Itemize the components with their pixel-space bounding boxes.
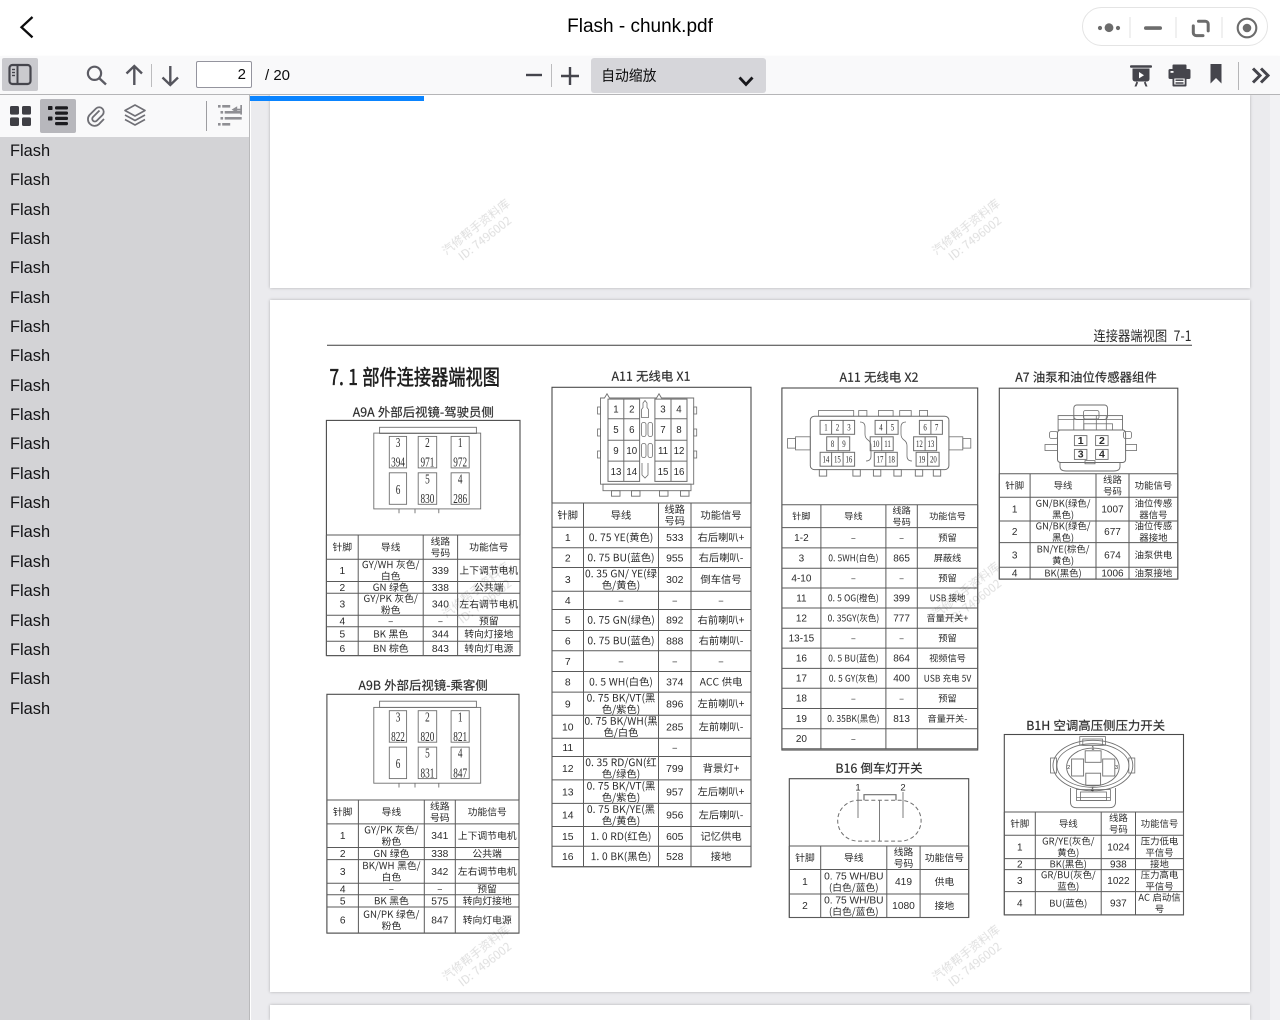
svg-text:847: 847 — [431, 916, 448, 927]
svg-text:18: 18 — [888, 453, 895, 465]
svg-text:338: 338 — [431, 849, 448, 860]
svg-text:2: 2 — [1099, 435, 1105, 447]
svg-text:2: 2 — [1067, 765, 1070, 771]
svg-text:3: 3 — [1017, 876, 1023, 887]
svg-text:13: 13 — [611, 467, 622, 478]
svg-text:14: 14 — [562, 811, 574, 822]
svg-text:2: 2 — [425, 711, 430, 725]
svg-text:5: 5 — [613, 425, 618, 436]
svg-text:338: 338 — [432, 583, 449, 594]
svg-text:677: 677 — [1104, 527, 1121, 538]
svg-text:1: 1 — [339, 566, 345, 577]
svg-text:843: 843 — [432, 644, 449, 655]
svg-text:1: 1 — [340, 831, 346, 842]
svg-text:5: 5 — [425, 747, 430, 761]
svg-text:7: 7 — [660, 425, 665, 436]
svg-text:605: 605 — [666, 832, 684, 843]
svg-text:10: 10 — [562, 722, 574, 733]
svg-text:6: 6 — [339, 644, 345, 655]
svg-text:0. 75 WH/BU: 0. 75 WH/BU — [824, 896, 883, 907]
svg-text:3: 3 — [847, 421, 850, 433]
svg-text:3: 3 — [1012, 550, 1018, 561]
svg-text:4: 4 — [340, 884, 346, 895]
svg-text:4: 4 — [879, 421, 883, 433]
svg-text:7: 7 — [565, 657, 571, 668]
svg-text:937: 937 — [1110, 899, 1127, 910]
svg-text:2: 2 — [900, 783, 905, 794]
svg-text:19: 19 — [918, 453, 925, 465]
svg-text:1: 1 — [1078, 435, 1084, 447]
svg-text:5: 5 — [339, 630, 345, 641]
svg-text:10: 10 — [626, 446, 637, 457]
svg-text:1: 1 — [458, 711, 463, 725]
svg-text:6: 6 — [340, 916, 346, 927]
svg-text:0. 75 WH/BU: 0. 75 WH/BU — [824, 872, 883, 883]
svg-text:896: 896 — [666, 699, 684, 710]
svg-text:9: 9 — [565, 699, 571, 710]
svg-text:394: 394 — [391, 456, 405, 470]
svg-text:971: 971 — [420, 456, 434, 470]
svg-text:374: 374 — [666, 678, 684, 689]
svg-text:15: 15 — [834, 453, 841, 465]
svg-text:847: 847 — [453, 767, 467, 781]
svg-text:19: 19 — [796, 714, 808, 725]
svg-text:1080: 1080 — [892, 901, 915, 912]
svg-text:6: 6 — [396, 758, 401, 772]
svg-text:674: 674 — [1104, 550, 1121, 561]
svg-text:4: 4 — [458, 747, 463, 761]
svg-text:20: 20 — [796, 734, 808, 745]
svg-text:821: 821 — [453, 730, 467, 744]
svg-text:1007: 1007 — [1101, 505, 1124, 516]
svg-text:575: 575 — [431, 896, 448, 907]
svg-text:4-10: 4-10 — [791, 573, 811, 584]
svg-text:2: 2 — [339, 583, 345, 594]
svg-text:6: 6 — [396, 483, 401, 497]
svg-text:2: 2 — [1012, 527, 1018, 538]
svg-text:8: 8 — [565, 678, 571, 689]
svg-text:892: 892 — [666, 616, 684, 627]
svg-text:3: 3 — [565, 575, 571, 586]
svg-text:5: 5 — [340, 896, 346, 907]
svg-text:10: 10 — [873, 438, 880, 450]
svg-text:3: 3 — [1078, 449, 1084, 461]
svg-text:16: 16 — [562, 852, 574, 863]
svg-text:7: 7 — [935, 421, 938, 433]
svg-text:1: 1 — [565, 533, 571, 544]
svg-text:16: 16 — [845, 453, 852, 465]
svg-text:4: 4 — [676, 405, 682, 416]
svg-text:419: 419 — [895, 877, 912, 888]
svg-text:799: 799 — [666, 764, 684, 775]
svg-text:2: 2 — [425, 437, 430, 451]
svg-text:1: 1 — [1012, 505, 1018, 516]
svg-text:3: 3 — [1115, 765, 1118, 771]
svg-text:3: 3 — [340, 867, 346, 878]
svg-text:1: 1 — [855, 783, 860, 794]
svg-text:15: 15 — [658, 467, 669, 478]
svg-text:831: 831 — [420, 767, 434, 781]
svg-text:12: 12 — [796, 613, 808, 624]
svg-text:528: 528 — [666, 852, 684, 863]
svg-text:777: 777 — [893, 613, 910, 624]
svg-text:12: 12 — [674, 446, 685, 457]
svg-text:16: 16 — [796, 654, 808, 665]
svg-text:1: 1 — [613, 405, 618, 416]
svg-text:6: 6 — [629, 425, 634, 436]
svg-text:14: 14 — [822, 453, 829, 465]
svg-text:9: 9 — [613, 446, 618, 457]
svg-text:533: 533 — [666, 533, 684, 544]
svg-text:3: 3 — [396, 437, 401, 451]
svg-text:864: 864 — [893, 654, 910, 665]
svg-text:13-15: 13-15 — [789, 633, 815, 644]
svg-text:286: 286 — [453, 493, 467, 507]
svg-text:4: 4 — [1012, 569, 1018, 580]
svg-text:956: 956 — [666, 811, 684, 822]
svg-text:5: 5 — [891, 421, 894, 433]
svg-text:3: 3 — [799, 553, 805, 564]
svg-text:4: 4 — [458, 473, 463, 487]
svg-text:13: 13 — [927, 438, 934, 450]
svg-text:4: 4 — [339, 617, 345, 628]
svg-text:6: 6 — [565, 636, 571, 647]
svg-text:4: 4 — [565, 596, 571, 607]
svg-text:341: 341 — [431, 831, 448, 842]
svg-text:14: 14 — [626, 467, 637, 478]
svg-text:820: 820 — [420, 730, 434, 744]
svg-text:2: 2 — [565, 553, 571, 564]
svg-text:16: 16 — [674, 467, 685, 478]
svg-text:340: 340 — [432, 600, 449, 611]
svg-text:3: 3 — [339, 600, 345, 611]
svg-text:1024: 1024 — [1107, 842, 1130, 853]
svg-text:865: 865 — [893, 553, 910, 564]
svg-text:4: 4 — [1017, 899, 1023, 910]
svg-text:955: 955 — [666, 553, 684, 564]
svg-text:11: 11 — [796, 593, 807, 604]
svg-text:18: 18 — [796, 694, 808, 705]
svg-text:399: 399 — [893, 593, 910, 604]
svg-text:3: 3 — [396, 711, 401, 725]
svg-text:17: 17 — [796, 674, 808, 685]
svg-text:1022: 1022 — [1107, 876, 1130, 887]
svg-text:972: 972 — [453, 456, 467, 470]
svg-text:822: 822 — [391, 730, 405, 744]
svg-text:400: 400 — [893, 674, 910, 685]
svg-text:9: 9 — [842, 438, 845, 450]
svg-text:813: 813 — [893, 714, 910, 725]
svg-text:11: 11 — [658, 446, 668, 457]
svg-text:12: 12 — [916, 438, 923, 450]
svg-text:342: 342 — [431, 867, 448, 878]
svg-text:11: 11 — [884, 438, 891, 450]
svg-text:2: 2 — [340, 849, 346, 860]
svg-text:17: 17 — [877, 453, 884, 465]
svg-text:13: 13 — [562, 787, 574, 798]
svg-text:2: 2 — [629, 405, 634, 416]
svg-text:957: 957 — [666, 787, 684, 798]
svg-text:2: 2 — [836, 421, 839, 433]
svg-text:344: 344 — [432, 630, 449, 641]
svg-text:20: 20 — [930, 453, 937, 465]
svg-text:285: 285 — [666, 722, 684, 733]
svg-text:15: 15 — [562, 832, 574, 843]
svg-text:1006: 1006 — [1101, 569, 1124, 580]
svg-text:6: 6 — [923, 421, 926, 433]
svg-text:1: 1 — [1091, 746, 1094, 752]
svg-text:8: 8 — [676, 425, 681, 436]
svg-text:1: 1 — [1017, 842, 1023, 853]
svg-text:938: 938 — [1110, 859, 1127, 870]
svg-text:888: 888 — [666, 636, 684, 647]
svg-text:1: 1 — [458, 437, 463, 451]
svg-text:8: 8 — [831, 438, 834, 450]
svg-text:5: 5 — [425, 473, 430, 487]
svg-text:1-2: 1-2 — [794, 533, 809, 544]
svg-text:1: 1 — [824, 421, 827, 433]
svg-text:302: 302 — [666, 575, 684, 586]
svg-text:2: 2 — [802, 901, 808, 912]
svg-text:11: 11 — [562, 743, 573, 754]
svg-text:339: 339 — [432, 566, 449, 577]
svg-text:2: 2 — [1017, 859, 1023, 870]
svg-text:1: 1 — [802, 877, 808, 888]
svg-text:12: 12 — [562, 764, 574, 775]
svg-text:3: 3 — [660, 405, 665, 416]
svg-text:830: 830 — [420, 493, 434, 507]
svg-text:5: 5 — [565, 616, 571, 627]
svg-text:4: 4 — [1099, 449, 1105, 461]
